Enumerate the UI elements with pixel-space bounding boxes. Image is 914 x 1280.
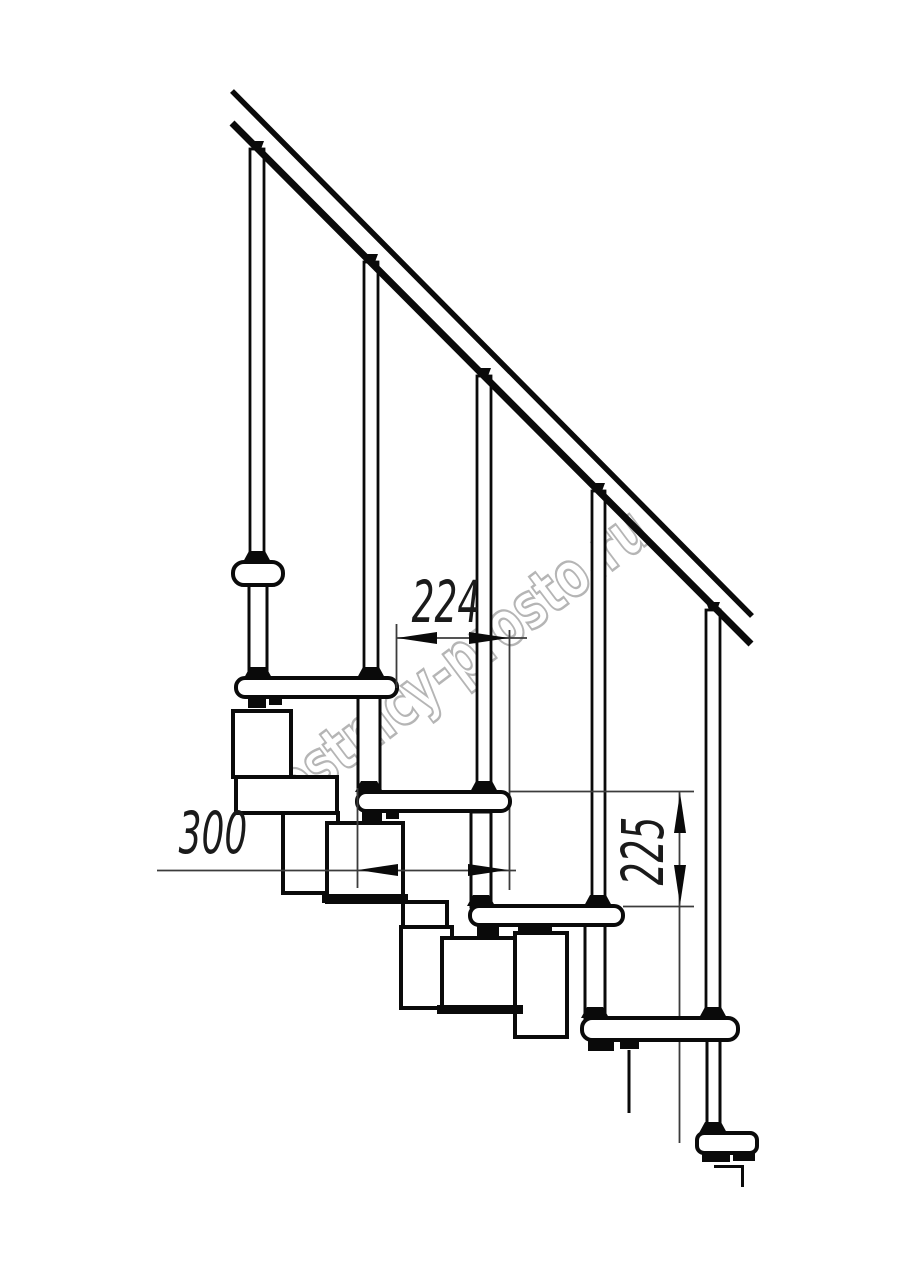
- collar-baluster-5: [699, 1007, 727, 1018]
- collar-baluster-4: [584, 895, 612, 906]
- baluster-2: [364, 262, 378, 678]
- baluster-4: [592, 491, 605, 906]
- dimension-label-rise: 225: [609, 817, 677, 886]
- tread-1: [233, 562, 283, 585]
- bracket-foot-1b: [269, 697, 282, 705]
- floor-base-plate: [697, 1133, 757, 1153]
- collar-baluster-2: [357, 667, 385, 678]
- base-foot-a: [702, 1152, 730, 1162]
- bracket-foot-4b: [620, 1041, 639, 1049]
- bracket-foot-2b: [386, 811, 399, 819]
- module-3-base-bar: [437, 1005, 523, 1014]
- module-under-tread-3-upper: [327, 823, 403, 902]
- dimension-label-tread-depth: 300: [179, 799, 248, 867]
- module-2-base-bar: [322, 894, 408, 903]
- tread-5: [582, 1018, 738, 1040]
- staircase-technical-drawing: lestnicy-prosto.ru 224 300 225: [0, 0, 914, 1280]
- module-connector-1: [236, 777, 337, 813]
- baluster-5: [706, 610, 720, 1018]
- module-under-tread-2-upper: [233, 711, 291, 777]
- support-column-4: [585, 925, 605, 1019]
- module-under-tread-4-upper: [442, 938, 518, 1007]
- baluster-1: [250, 149, 264, 562]
- bracket-foot-2a: [362, 811, 382, 822]
- support-column-5: [707, 1040, 720, 1133]
- bracket-foot-3a: [477, 925, 499, 936]
- bracket-foot-3b: [518, 927, 552, 935]
- collar-base: [699, 1122, 727, 1133]
- collar-baluster-3: [470, 781, 498, 792]
- support-column-2: [358, 697, 380, 793]
- tread-2: [236, 678, 397, 697]
- support-column-3: [471, 812, 491, 907]
- collar-baluster-1: [243, 551, 271, 562]
- drawing-svg: [0, 0, 914, 1280]
- support-column-1: [249, 585, 267, 678]
- bracket-foot-1a: [248, 697, 266, 708]
- module-connector-2: [403, 902, 447, 927]
- module-lower-3: [515, 933, 567, 1037]
- bracket-foot-4a: [588, 1040, 614, 1051]
- dimension-label-going: 224: [412, 568, 481, 636]
- tread-3: [357, 792, 510, 811]
- tread-4: [470, 906, 623, 925]
- base-foot-b: [733, 1152, 755, 1161]
